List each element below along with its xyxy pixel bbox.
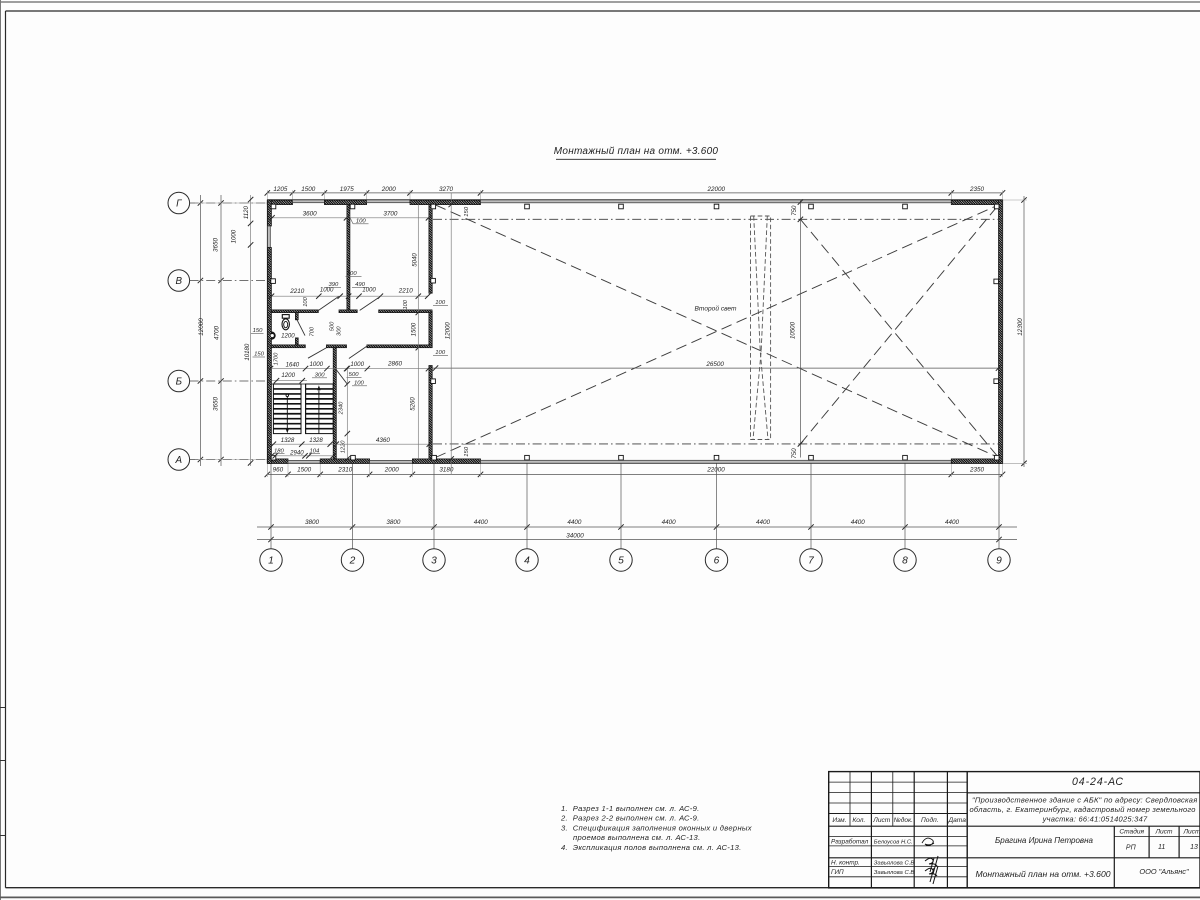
svg-text:100: 100 [435, 300, 446, 306]
svg-text:3700: 3700 [383, 210, 398, 217]
svg-text:26500: 26500 [705, 361, 724, 368]
svg-text:700: 700 [310, 326, 316, 336]
svg-text:В: В [176, 276, 183, 287]
svg-text:3650: 3650 [213, 397, 220, 412]
svg-text:4360: 4360 [376, 437, 391, 444]
svg-text:"Производственное здание с АБК: "Производственное здание с АБК" по адрес… [972, 795, 1197, 804]
svg-text:Завьялова С.В: Завьялова С.В [874, 870, 915, 876]
svg-text:3600: 3600 [303, 210, 318, 217]
svg-text:Белоусов Н.С.: Белоусов Н.С. [874, 839, 913, 845]
svg-text:8: 8 [902, 556, 908, 567]
svg-text:100: 100 [435, 350, 446, 356]
svg-text:Изм.: Изм. [832, 817, 846, 824]
svg-text:А: А [175, 455, 183, 466]
svg-text:Кол.: Кол. [852, 817, 865, 824]
svg-text:150: 150 [464, 446, 470, 457]
svg-text:2: 2 [349, 556, 356, 567]
svg-text:1500: 1500 [301, 186, 316, 193]
svg-text:2. Разрез 2-2 выполнен см. л.: 2. Разрез 2-2 выполнен см. л. АС-9. [560, 814, 700, 823]
svg-text:Завьялова С.В: Завьялова С.В [874, 860, 915, 866]
svg-text:100: 100 [403, 299, 409, 309]
svg-text:ООО "Альянс": ООО "Альянс" [1139, 867, 1189, 876]
svg-text:4400: 4400 [567, 519, 582, 526]
svg-text:1: 1 [268, 556, 274, 567]
svg-text:10500: 10500 [790, 321, 797, 339]
svg-text:150: 150 [253, 328, 264, 334]
svg-text:1000: 1000 [350, 361, 364, 368]
svg-text:9: 9 [996, 556, 1002, 567]
svg-text:№док.: №док. [894, 816, 914, 824]
svg-text:2210: 2210 [398, 288, 414, 295]
svg-text:750: 750 [791, 205, 798, 216]
svg-text:Лист: Лист [1155, 829, 1173, 836]
svg-text:2350: 2350 [969, 186, 985, 193]
svg-text:7: 7 [808, 556, 814, 567]
svg-text:500: 500 [349, 372, 360, 378]
svg-text:22000: 22000 [706, 186, 725, 193]
svg-text:4400: 4400 [474, 519, 489, 526]
svg-text:13: 13 [1190, 844, 1198, 851]
svg-text:1975: 1975 [340, 186, 355, 193]
svg-text:22000: 22000 [706, 467, 725, 474]
svg-text:1. Разрез 1-1 выполнен см. л.: 1. Разрез 1-1 выполнен см. л. АС-9. [561, 804, 700, 813]
svg-text:750: 750 [791, 448, 798, 459]
svg-text:12000: 12000 [444, 322, 451, 340]
svg-text:Монтажный план на отм. +3.600: Монтажный план на отм. +3.600 [975, 869, 1110, 879]
svg-text:Второй свет: Второй свет [695, 304, 738, 312]
svg-text:3800: 3800 [386, 519, 401, 526]
svg-text:5040: 5040 [412, 253, 419, 267]
svg-text:Г: Г [176, 198, 182, 209]
svg-text:500: 500 [329, 321, 335, 331]
svg-text:34000: 34000 [566, 533, 584, 540]
svg-text:3800: 3800 [305, 519, 320, 526]
svg-text:1500: 1500 [297, 467, 312, 474]
svg-text:проемов выполнена см. л. АС-13: проемов выполнена см. л. АС-13. [573, 833, 700, 842]
svg-text:4400: 4400 [662, 519, 677, 526]
svg-text:6: 6 [714, 556, 720, 567]
svg-text:1200: 1200 [281, 333, 295, 340]
svg-text:5260: 5260 [409, 397, 416, 411]
svg-text:2000: 2000 [381, 186, 397, 193]
svg-text:1640: 1640 [286, 362, 300, 369]
svg-text:Б: Б [176, 376, 183, 387]
svg-text:3650: 3650 [213, 238, 220, 253]
svg-text:300: 300 [336, 326, 342, 336]
svg-text:150: 150 [464, 206, 470, 217]
svg-text:Дата: Дата [947, 817, 966, 824]
svg-text:4: 4 [524, 556, 530, 567]
svg-text:Лист: Лист [872, 817, 890, 824]
svg-text:Стадия: Стадия [1119, 828, 1144, 836]
svg-text:4400: 4400 [851, 519, 866, 526]
svg-text:1000: 1000 [310, 361, 324, 368]
svg-text:1328: 1328 [309, 437, 323, 444]
svg-text:Брагина Ирина Петровна: Брагина Ирина Петровна [995, 836, 1093, 845]
svg-text:2340: 2340 [339, 401, 345, 415]
svg-text:2000: 2000 [384, 467, 400, 474]
svg-text:11: 11 [1158, 844, 1165, 851]
svg-text:1220: 1220 [340, 440, 346, 453]
svg-text:область, г. Екатеринбург, када: область, г. Екатеринбург, кадастровый но… [970, 805, 1196, 814]
svg-text:РП: РП [1126, 844, 1137, 851]
svg-text:2350: 2350 [969, 467, 985, 474]
svg-text:12300: 12300 [1017, 318, 1024, 336]
svg-text:Разработал: Разработал [831, 837, 869, 845]
svg-text:3: 3 [431, 556, 437, 567]
svg-text:Лист: Лист [1183, 829, 1200, 836]
svg-text:3. Спецификация заполнения ок: 3. Спецификация заполнения оконных и две… [561, 823, 753, 832]
svg-text:Н. контр.: Н. контр. [831, 859, 860, 866]
svg-text:10180: 10180 [244, 343, 251, 361]
svg-text:ГИП: ГИП [831, 869, 844, 876]
svg-text:4400: 4400 [756, 519, 771, 526]
svg-text:2860: 2860 [387, 361, 403, 368]
svg-text:100: 100 [303, 296, 309, 306]
svg-text:1200: 1200 [281, 372, 295, 379]
svg-text:3180: 3180 [439, 467, 454, 474]
svg-text:4. Экспликация полов выполнен: 4. Экспликация полов выполнена см. л. АС… [561, 843, 742, 852]
svg-text:150: 150 [254, 352, 265, 358]
svg-text:2940: 2940 [289, 449, 304, 456]
svg-text:960: 960 [273, 467, 284, 474]
svg-text:1205: 1205 [273, 186, 288, 193]
svg-text:1700: 1700 [273, 352, 279, 365]
svg-text:100: 100 [356, 218, 367, 224]
svg-text:300: 300 [315, 372, 326, 378]
svg-text:Монтажный план на отм. +3.600: Монтажный план на отм. +3.600 [554, 146, 719, 157]
svg-text:1120: 1120 [243, 205, 250, 219]
svg-text:2210: 2210 [289, 288, 305, 295]
svg-text:100: 100 [347, 271, 358, 277]
svg-text:3270: 3270 [439, 186, 454, 193]
svg-text:4700: 4700 [214, 326, 221, 341]
svg-text:04-24-АС: 04-24-АС [1072, 776, 1124, 788]
svg-text:участка: 66:41:0514025:347: участка: 66:41:0514025:347 [1042, 814, 1148, 823]
svg-text:Подп.: Подп. [921, 816, 939, 824]
svg-text:4400: 4400 [945, 519, 960, 526]
svg-text:100: 100 [354, 380, 365, 386]
svg-text:5: 5 [618, 556, 624, 567]
svg-text:1000: 1000 [231, 229, 238, 243]
svg-text:12000: 12000 [198, 318, 205, 336]
svg-text:1500: 1500 [410, 322, 417, 336]
svg-text:2310: 2310 [337, 467, 353, 474]
svg-text:1328: 1328 [281, 437, 295, 444]
